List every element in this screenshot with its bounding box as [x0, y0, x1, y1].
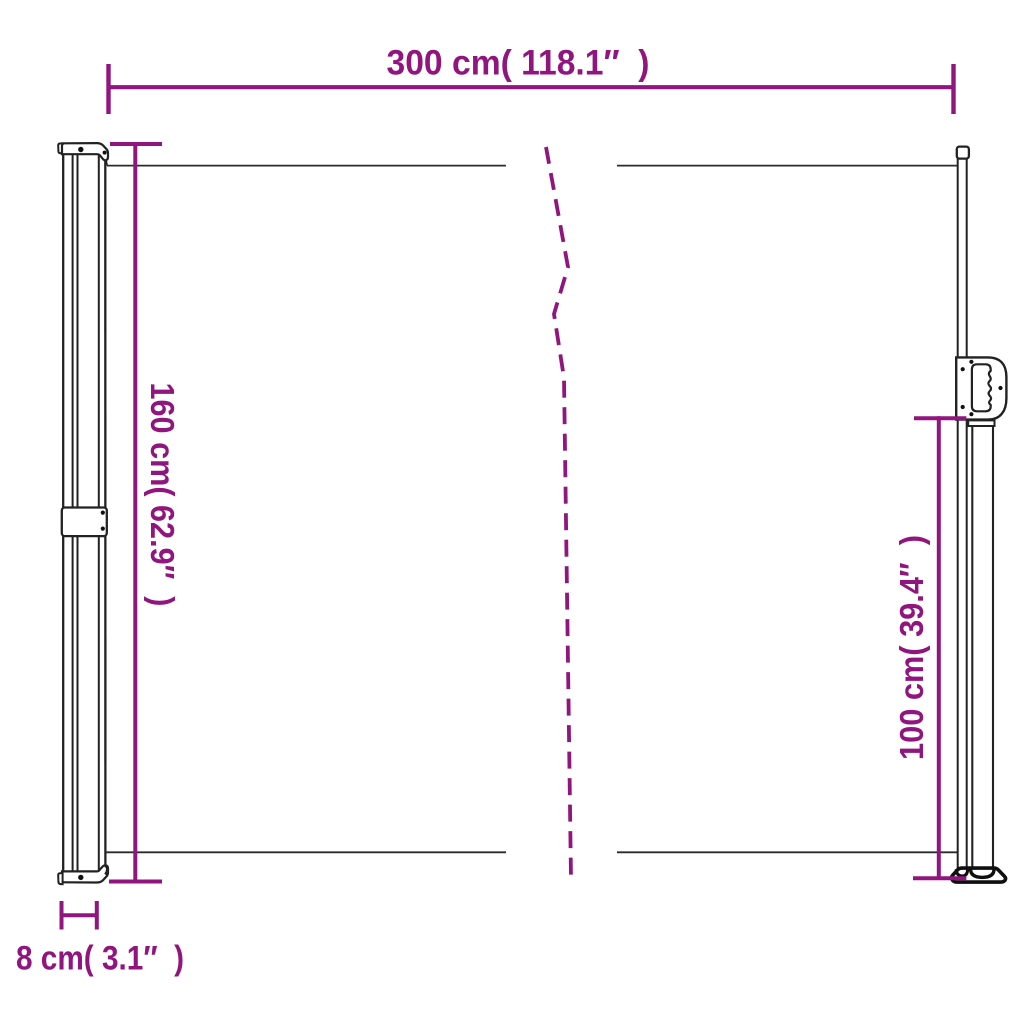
svg-text:160 cm( 62.9″ ): 160 cm( 62.9″ ): [144, 383, 181, 607]
svg-text:300 cm( 118.1″ ): 300 cm( 118.1″ ): [387, 43, 650, 82]
svg-text:100 cm( 39.4″ ): 100 cm( 39.4″ ): [893, 535, 930, 760]
svg-text:8 cm( 3.1″ ): 8 cm( 3.1″ ): [16, 940, 184, 978]
